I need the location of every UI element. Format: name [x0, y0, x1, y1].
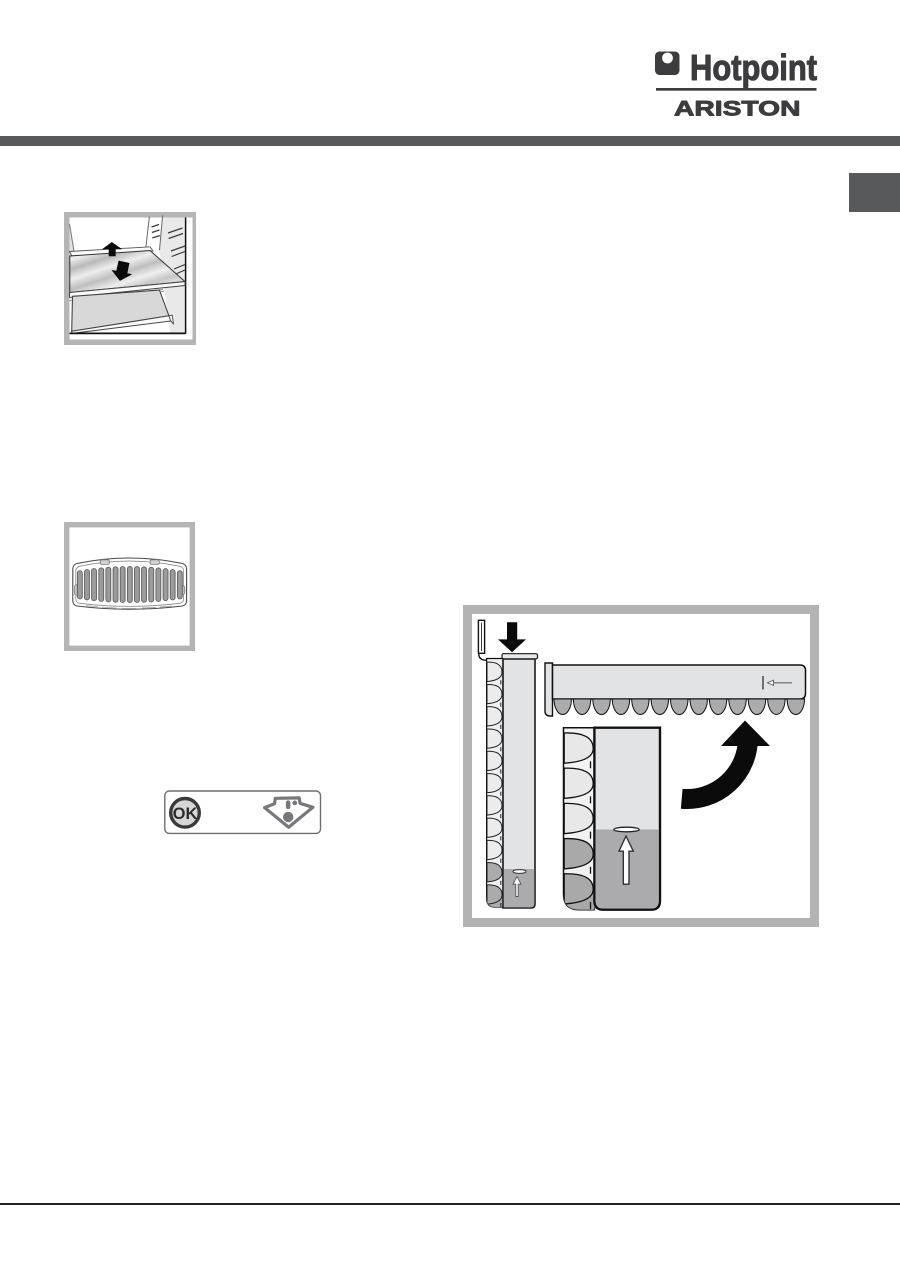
- svg-text:Hotpoint: Hotpoint: [690, 47, 817, 88]
- svg-text:OK: OK: [173, 804, 198, 823]
- svg-text:ARISTON: ARISTON: [674, 97, 801, 121]
